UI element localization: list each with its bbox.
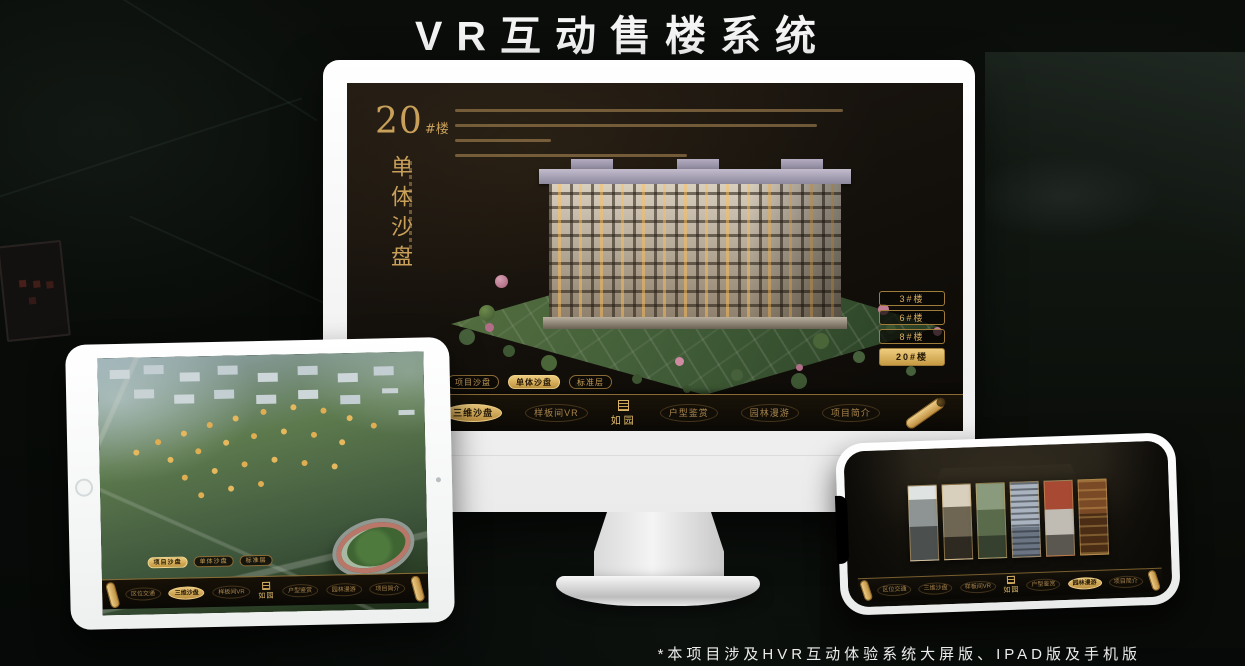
gallery-panel-building[interactable]	[1009, 481, 1041, 558]
brand-name: 如园	[258, 591, 274, 601]
brand-seal-icon	[1007, 576, 1015, 584]
building-button-6[interactable]: 6#楼	[879, 310, 945, 325]
scroll-handle-icon[interactable]	[105, 581, 121, 608]
tablet-camera-icon	[436, 477, 441, 482]
aerial-buildings	[110, 370, 130, 379]
tablet-device: 项目沙盘 单体沙盘 标准层 区位交通 三维沙盘 样板间VR 如园 户型鉴赏 园林…	[65, 337, 455, 630]
building-button-3[interactable]: 3#楼	[879, 291, 945, 306]
tab-standard-floor[interactable]: 标准层	[240, 555, 273, 567]
menu-item-project-intro[interactable]: 项目简介	[1109, 575, 1143, 588]
brand-name: 如园	[1003, 585, 1019, 596]
monitor-stand-neck	[594, 512, 724, 578]
building-roof	[539, 169, 851, 184]
menu-item-3d-sandtable[interactable]: 三维沙盘	[169, 586, 205, 600]
tab-single-sandtable[interactable]: 单体沙盘	[508, 375, 560, 389]
phone-device: 区位交通 三维沙盘 样板间VR 如园 户型鉴赏 园林漫游 项目简介	[835, 432, 1181, 616]
building-number-markers[interactable]	[133, 450, 139, 456]
gallery-panel-cabinet[interactable]	[1077, 479, 1109, 556]
block-number-suffix: #楼	[425, 122, 449, 137]
building-button-8[interactable]: 8#楼	[879, 329, 945, 344]
menu-item-garden-tour[interactable]: 园林漫游	[326, 583, 362, 597]
menu-item-3d-sandtable[interactable]: 三维沙盘	[444, 404, 502, 422]
scroll-handle-icon[interactable]	[410, 574, 426, 601]
garden-gallery	[845, 476, 1171, 563]
tablet-screen: 项目沙盘 单体沙盘 标准层 区位交通 三维沙盘 样板间VR 如园 户型鉴赏 园林…	[97, 352, 428, 616]
phone-side-button	[1170, 500, 1175, 536]
menu-item-location[interactable]: 区位交通	[125, 587, 161, 601]
background-plaque	[0, 240, 71, 342]
pink-trees	[495, 275, 508, 288]
gallery-panel-courtyard[interactable]	[907, 484, 939, 561]
menu-item-showroom-vr[interactable]: 样板间VR	[212, 585, 251, 599]
phone-notch	[835, 496, 849, 564]
menu-item-floorplans[interactable]: 户型鉴赏	[282, 584, 318, 598]
scroll-handle-icon[interactable]	[904, 396, 946, 430]
brand-seal-icon	[618, 400, 629, 411]
menu-item-garden-tour[interactable]: 园林漫游	[1067, 576, 1101, 589]
phone-screen: 区位交通 三维沙盘 样板间VR 如园 户型鉴赏 园林漫游 项目简介	[843, 440, 1172, 607]
brand-name: 如园	[611, 412, 637, 427]
vertical-subtitle-decoration	[409, 159, 412, 249]
building-button-20[interactable]: 20#楼	[879, 348, 945, 366]
menu-item-garden-tour[interactable]: 园林漫游	[741, 404, 799, 422]
menu-item-project-intro[interactable]: 项目简介	[369, 582, 405, 596]
gallery-panel-garden[interactable]	[975, 482, 1007, 559]
menu-item-floorplans[interactable]: 户型鉴赏	[1026, 578, 1060, 591]
brand-seal-icon	[262, 582, 270, 590]
building-model-scene	[451, 157, 939, 397]
tab-single-sandtable[interactable]: 单体沙盘	[194, 556, 234, 568]
tab-standard-floor[interactable]: 标准层	[569, 375, 612, 389]
brand-logo: 如园	[611, 400, 637, 427]
tab-project-sandtable[interactable]: 项目沙盘	[148, 557, 188, 569]
description-line	[455, 109, 843, 112]
description-line	[455, 139, 551, 142]
background-aerial-photo	[985, 52, 1245, 432]
gallery-panel-interior[interactable]	[941, 483, 973, 560]
menu-item-showroom-vr[interactable]: 样板间VR	[960, 580, 997, 593]
menu-item-location[interactable]: 区位交通	[877, 583, 911, 596]
page-title: VR互动售楼系统	[0, 2, 1245, 62]
brand-logo: 如园	[258, 582, 274, 601]
sandtable-tabs: 项目沙盘 单体沙盘 标准层	[447, 375, 612, 389]
menu-item-3d-sandtable[interactable]: 三维沙盘	[918, 581, 952, 594]
menu-item-floorplans[interactable]: 户型鉴赏	[660, 404, 718, 422]
building-facade	[549, 184, 841, 321]
scroll-handle-icon[interactable]	[859, 579, 873, 601]
block-heading: 20#楼	[375, 101, 449, 142]
block-number: 20	[375, 101, 423, 142]
gallery-panel-red-tree[interactable]	[1043, 480, 1075, 557]
tablet-home-button[interactable]	[75, 478, 93, 496]
scroll-handle-icon[interactable]	[1147, 569, 1161, 591]
brand-logo: 如园	[1003, 576, 1020, 596]
plaque-glyphs	[19, 280, 27, 288]
description-line	[455, 124, 817, 127]
building-selector: 3#楼 6#楼 8#楼 20#楼	[879, 291, 945, 366]
building-plinth	[543, 317, 847, 329]
poster-canvas: VR互动售楼系统 20#楼 单体沙盘	[0, 0, 1245, 666]
menu-item-showroom-vr[interactable]: 样板间VR	[525, 404, 588, 422]
residential-building-model	[549, 169, 841, 321]
footnote-caption: *本项目涉及HVR互动体验系统大屏版、IPAD版及手机版	[658, 643, 1141, 664]
tab-project-sandtable[interactable]: 项目沙盘	[447, 375, 499, 389]
menu-item-project-intro[interactable]: 项目简介	[822, 404, 880, 422]
green-trees	[479, 305, 495, 321]
